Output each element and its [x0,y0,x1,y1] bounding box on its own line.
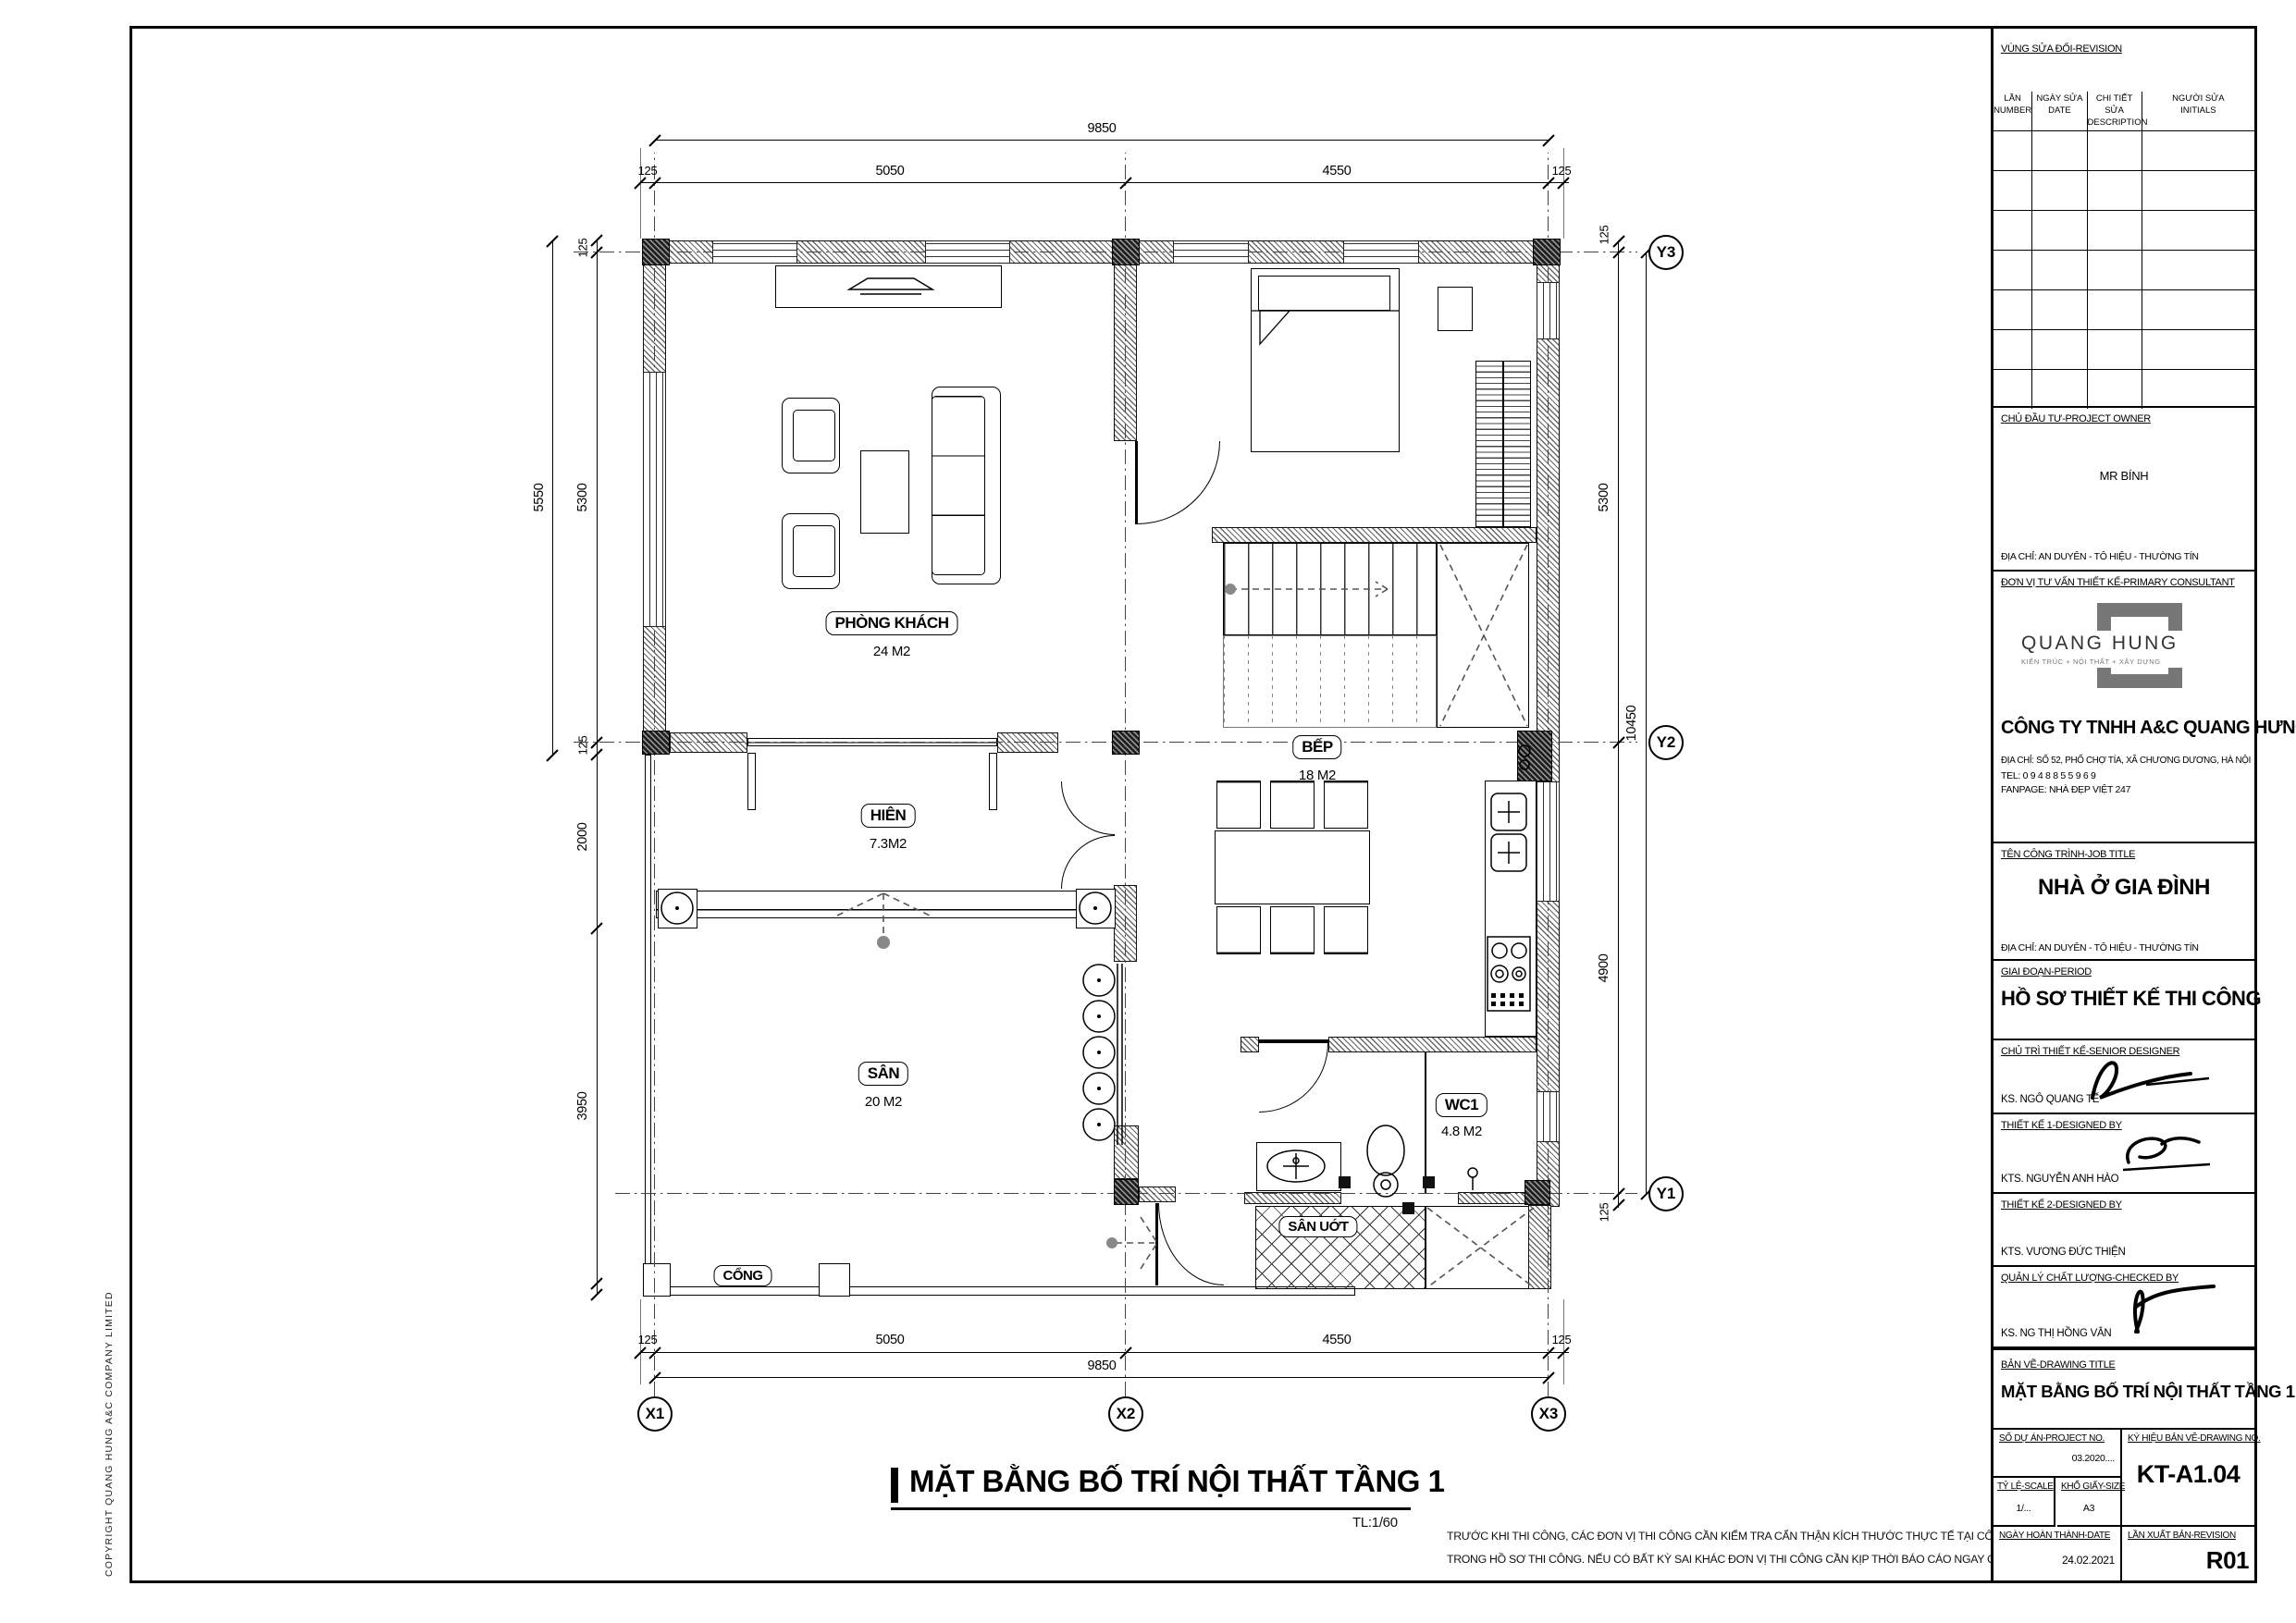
rev-row-cell [2142,130,2254,170]
dim-top-125b: 125 [1552,164,1572,178]
tb-owner-address: ĐỊA CHỈ: AN DUYÊN - TÔ HIỆU - THƯỜNG TÍN [2001,551,2199,562]
logo-title: QUANG HUNG [2021,633,2179,655]
dimline-bottom-total [655,1377,1549,1378]
rev-row-cell [2032,210,2087,250]
dim-left-3950: 3950 [575,1091,590,1120]
tb-role-design2-name: KTS. VƯƠNG ĐỨC THIỆN [2001,1247,2125,1258]
tb-scale: TỶ LỆ-SCALE 1/... [1994,1478,2055,1527]
armchair-1-seat [793,410,835,461]
tb-date-label: NGÀY HOÀN THÀNH-DATE [1999,1531,2115,1541]
dining-table [1215,830,1370,904]
rev-row-cell [1994,289,2032,329]
rev-row-cell [1994,210,2032,250]
signature-senior [2081,1053,2220,1107]
pergola-post-right [1076,889,1116,928]
tb-meta-right: KÝ HIỆU BẢN VẼ-DRAWING NO. KT-A1.04 LẦN … [2122,1430,2254,1580]
wc-partition [1425,1052,1426,1193]
tb-drawing-label: BẢN VẼ-DRAWING TITLE [2001,1359,2247,1371]
rev-row-cell [2088,289,2142,329]
rev-row-cell [2142,210,2254,250]
rev-col-number-vi: LẦN [2004,93,2020,104]
dimline-left-outer [552,240,553,756]
grid-label-x1: X1 [646,1405,665,1423]
dim-top-5050: 5050 [875,164,904,178]
dining-chair-5 [1270,906,1315,954]
rev-col-date: NGÀY SỬADATE [2032,92,2087,130]
tb-company-fanpage: FANPAGE: NHÀ ĐẸP VIỆT 247 [2001,784,2247,795]
rev-col-initials-vi: NGƯỜI SỬA [2172,93,2225,104]
rev-row-cell [2142,289,2254,329]
dim-left-outer: 5550 [532,483,547,511]
dim-bottom-total: 9850 [1087,1359,1116,1373]
column-x1-y3 [642,239,670,265]
rev-col-date-en: DATE [2048,105,2071,116]
tb-drawno-label: KÝ HIỆU BẢN VẼ-DRAWING NO. [2128,1433,2249,1444]
dining-chair-6 [1324,906,1368,954]
grid-bubble-y1: Y1 [1648,1176,1684,1211]
rev-row-cell [2088,210,2142,250]
tb-consultant: ĐƠN VỊ TƯ VẤN THIẾT KẾ-PRIMARY CONSULTAN… [1994,572,2254,843]
wall-bedroom-bottom [1212,527,1537,543]
tb-job-label: TÊN CÔNG TRÌNH-JOB TITLE [2001,849,2247,860]
tb-role-checked-name: KS. NG THỊ HỒNG VÂN [2001,1328,2111,1339]
wall-x2-lower [1114,1125,1139,1179]
wall-wc-top-b [1328,1037,1537,1052]
dim-right-125b: 125 [1598,1203,1611,1223]
dim-top-4550: 4550 [1322,164,1351,178]
tb-owner: CHỦ ĐẦU TƯ-PROJECT OWNER MR BÍNH ĐỊA CHỈ… [1994,408,2254,572]
pergola-beam [656,891,1078,918]
dining-chair-2 [1270,781,1315,829]
tb-size: KHỔ GIẤY-SIZE A3 [2057,1478,2120,1527]
tb-revision: VÙNG SỬA ĐỔI-REVISION LẦNNUMBER NGÀY SỬA… [1994,29,2254,408]
rev-row-cell [2088,130,2142,170]
grid-label-x2: X2 [1117,1405,1136,1423]
tb-role-design2-label: THIẾT KẾ 2-DESIGNED BY [2001,1199,2247,1211]
tb-role-design2: THIẾT KẾ 2-DESIGNED BY KTS. VƯƠNG ĐỨC TH… [1994,1194,2254,1267]
tb-meta-left: SỐ DỰ ÁN-PROJECT NO. 03.2020.... TỶ LỆ-S… [1994,1430,2122,1580]
window-right-bedroom [1537,282,1560,339]
yard-door-leaf [1155,1203,1158,1285]
tb-job-address: ĐỊA CHỈ: AN DUYÊN - TÔ HIỆU - THƯỜNG TÍN [2001,942,2199,953]
rev-row-cell [2032,170,2087,210]
tb-project-no: 03.2020.... [1999,1453,2115,1464]
tb-rev-value: R01 [2128,1546,2249,1575]
tb-job-title: NHÀ Ở GIA ĐÌNH [2001,875,2247,901]
rev-col-number: LẦNNUMBER [1994,92,2032,130]
tb-size-label: KHỔ GIẤY-SIZE [2061,1482,2117,1492]
column-x2-y1 [1114,1179,1139,1205]
rev-row-cell [2032,289,2087,329]
revision-table: LẦNNUMBER NGÀY SỬADATE CHI TIẾT SỬADESCR… [1994,92,2254,406]
window-right-wc [1537,1091,1560,1142]
rev-col-desc-vi: CHI TIẾT SỬA [2096,93,2132,116]
rev-col-desc: CHI TIẾT SỬADESCRIPTION [2088,92,2142,130]
tb-consultant-label: ĐƠN VỊ TƯ VẤN THIẾT KẾ-PRIMARY CONSULTAN… [2001,577,2247,588]
tb-period: GIAI ĐOẠN-PERIOD HỒ SƠ THIẾT KẾ THI CÔNG [1994,961,2254,1040]
rev-col-number-en: NUMBER [1994,105,2031,116]
rev-row-cell [1994,250,2032,289]
window-left [643,372,666,627]
rev-col-initials-en: INITIALS [2180,105,2216,116]
tank-cover [1426,1206,1536,1289]
dim-left-125t: 125 [576,239,590,258]
room-area-kitchen: 18 M2 [1299,768,1336,783]
tb-drawing-name: MẶT BẰNG BỐ TRÍ NỘI THẤT TẦNG 1 [2001,1382,2247,1402]
rev-row-cell [2032,250,2087,289]
dim-bot-4550: 4550 [1322,1333,1351,1347]
ext-top-2 [1563,148,1564,239]
rev-row-cell [1994,170,2032,210]
column-x3-y3 [1533,239,1561,265]
grid-bubble-y2: Y2 [1648,725,1684,760]
window-top-4 [1343,240,1419,264]
dimline-bottom-chain [640,1352,1569,1353]
rev-row-cell [2142,170,2254,210]
fence-left [645,755,651,1288]
tb-date-value: 24.02.2021 [1999,1554,2115,1567]
ext-top-1 [640,148,641,239]
wardrobe-centerline [1502,361,1504,527]
rev-row-cell [2088,329,2142,369]
rev-row-cell [2032,130,2087,170]
dim-left-2000: 2000 [575,822,590,851]
dim-right-4900: 4900 [1597,953,1611,982]
signature-checked [2105,1278,2225,1335]
rev-col-initials: NGƯỜI SỬAINITIALS [2142,92,2254,130]
column-x1-y2 [642,731,670,755]
armchair-2-seat [793,525,835,577]
dim-right-125t: 125 [1598,226,1611,245]
rev-row-cell [2088,250,2142,289]
column-x2-y2 [1112,731,1140,755]
tb-date: NGÀY HOÀN THÀNH-DATE 24.02.2021 [1994,1527,2120,1580]
tb-role-checked: QUẢN LÝ CHẤT LƯỢNG-CHECKED BY KS. NG THỊ… [1994,1267,2254,1348]
rev-row-cell [1994,130,2032,170]
tb-drawno-value: KT-A1.04 [2128,1460,2249,1489]
rev-row-cell [2088,369,2142,409]
tb-owner-name: MR BÍNH [2001,469,2247,483]
column-x2-y3 [1112,239,1140,265]
tb-company-tel: TEL: 0 9 4 8 8 5 5 9 6 9 [2001,770,2247,781]
dim-right-5300: 5300 [1597,483,1611,511]
main-title-bar [891,1468,898,1503]
tb-role-design1-label: THIẾT KẾ 1-DESIGNED BY [2001,1120,2247,1131]
window-top-1 [712,240,797,264]
grid-bubble-y3: Y3 [1648,235,1684,270]
room-label-yard: SÂN [858,1062,908,1086]
tb-company-address: ĐỊA CHỈ: SỐ 52, PHỐ CHỢ TÍA, XÃ CHƯƠNG D… [2001,756,2247,766]
gate-post-2 [819,1263,850,1297]
dim-top-125a: 125 [638,164,658,178]
stair-treads-upper [1223,543,1437,635]
room-label-living: PHÒNG KHÁCH [826,611,958,635]
gridline-x1 [654,153,655,1396]
dimline-top-chain [640,182,1569,183]
tb-project-label: SỐ DỰ ÁN-PROJECT NO. [1999,1433,2115,1444]
bedroom-door-leaf [1135,441,1138,524]
gridline-y2 [574,742,1637,743]
wc-basin-counter [1256,1142,1341,1191]
tv-cabinet [775,265,1002,308]
rev-col-desc-en: DESCRIPTION [2088,117,2148,128]
dim-bot-5050: 5050 [875,1333,904,1347]
grid-bubble-x2: X2 [1108,1396,1143,1432]
sofa-cushions [932,396,985,575]
tb-drawing-title: BẢN VẼ-DRAWING TITLE MẶT BẰNG BỐ TRÍ NỘI… [1994,1348,2254,1430]
tb-period-value: HỒ SƠ THIẾT KẾ THI CÔNG [2001,987,2247,1011]
plan-scale-note: TL:1/60 [1352,1515,1398,1531]
plan-title: MẶT BẰNG BỐ TRÍ NỘI THẤT TẦNG 1 [909,1464,1444,1499]
tb-scale-value: 1/... [1997,1503,2050,1514]
tb-revision-title: VÙNG SỬA ĐỔI-REVISION [2001,43,2247,55]
wall-wc-top-a [1241,1037,1259,1052]
logo-text-wrap: QUANG HUNG KIẾN TRÚC + NỘI THẤT + XÂY DỰ… [2018,631,2182,668]
dimline-right-inner [1618,240,1619,1208]
tb-role-design1-name: KTS. NGUYỄN ANH HÀO [2001,1174,2118,1185]
tb-size-value: A3 [2061,1503,2117,1514]
grid-label-x3: X3 [1539,1405,1559,1423]
dimline-left-chain [597,240,598,1295]
rev-row-cell [2142,329,2254,369]
dining-chair-3 [1324,781,1368,829]
room-area-yard: 20 M2 [865,1094,902,1110]
room-label-wetyard: SÂN UỚT [1278,1216,1357,1237]
dim-bot-125b: 125 [1552,1333,1572,1346]
dimline-right-outer [1646,252,1647,1194]
dimline-top-total [655,140,1549,141]
dining-chair-4 [1216,906,1261,954]
dim-right-total: 10450 [1624,706,1639,742]
room-area-wc: 4.8 M2 [1441,1124,1482,1139]
grid-label-y3: Y3 [1657,243,1676,262]
room-area-living: 24 M2 [873,644,910,659]
title-block: VÙNG SỬA ĐỔI-REVISION LẦNNUMBER NGÀY SỬA… [1991,26,2257,1583]
gate-post-1 [643,1263,671,1297]
stair-landing [1437,543,1529,728]
signature-design1 [2114,1131,2225,1179]
wall-step [1139,1187,1176,1202]
logo-subtitle: KIẾN TRÚC + NỘI THẤT + XÂY DỰNG [2021,658,2179,666]
tb-project: SỐ DỰ ÁN-PROJECT NO. 03.2020.... [1994,1430,2120,1478]
pergola-post-left [658,889,697,928]
consultant-logo: QUANG HUNG KIẾN TRÚC + NỘI THẤT + XÂY DỰ… [2001,596,2247,707]
grid-bubble-x3: X3 [1531,1396,1566,1432]
rev-row-cell [1994,329,2032,369]
column-x3-y1 [1524,1180,1550,1205]
main-title-underline [891,1507,1411,1510]
rev-row-cell [2032,369,2087,409]
tb-scale-label: TỶ LỆ-SCALE [1997,1482,2050,1492]
tb-drawno: KÝ HIỆU BẢN VẼ-DRAWING NO. KT-A1.04 [2122,1430,2254,1527]
rev-row-cell [2088,170,2142,210]
rev-row-cell [2032,329,2087,369]
column-kitchen-corner [1517,731,1552,781]
dim-left-125b: 125 [576,736,590,756]
dim-bot-125a: 125 [638,1333,658,1346]
tb-job: TÊN CÔNG TRÌNH-JOB TITLE NHÀ Ở GIA ĐÌNH … [1994,843,2254,961]
tb-role-design1: THIẾT KẾ 1-DESIGNED BY KTS. NGUYỄN ANH H… [1994,1114,2254,1194]
window-top-2 [925,240,1010,264]
grid-bubble-x1: X1 [637,1396,673,1432]
rev-row-cell [1994,369,2032,409]
fence-bottom [643,1286,1355,1296]
tb-role-senior: CHỦ TRÌ THIẾT KẾ-SENIOR DESIGNER KS. NGÔ… [1994,1040,2254,1114]
grid-label-y1: Y1 [1657,1185,1676,1203]
room-label-wc: WC1 [1436,1093,1487,1117]
dim-top-total: 9850 [1087,121,1116,136]
copyright-text: COPYRIGHT QUANG HUNG A&C COMPANY LIMITED [104,1291,115,1577]
tb-meta: SỐ DỰ ÁN-PROJECT NO. 03.2020.... TỶ LỆ-S… [1994,1430,2254,1580]
stair-treads-lower [1223,635,1437,728]
room-label-kitchen: BẾP [1292,735,1341,759]
sliding-door-track-1 [747,753,756,810]
dim-left-5300: 5300 [575,483,590,511]
grid-label-y2: Y2 [1657,733,1676,752]
window-right-kitchen [1537,781,1560,902]
room-label-gate: CỔNG [714,1265,772,1286]
kitchen-counter [1485,781,1537,1037]
rev-row-cell [2142,250,2254,289]
dining-chair-1 [1216,781,1261,829]
tb-rev-label: LẦN XUẤT BẢN-REVISION [2128,1531,2249,1541]
rev-row-cell [2142,369,2254,409]
coffee-table [860,450,909,534]
window-top-3 [1173,240,1249,264]
tb-owner-label: CHỦ ĐẦU TƯ-PROJECT OWNER [2001,413,2247,424]
sliding-door-track-2 [989,753,997,810]
tb-company-name: CÔNG TY TNHH A&C QUANG HƯNG [2001,718,2247,739]
tb-rev: LẦN XUẤT BẢN-REVISION R01 [2122,1527,2254,1580]
room-area-porch: 7.3M2 [870,836,907,852]
desk [1438,287,1473,331]
bed-headboard [1258,276,1390,311]
rev-col-date-vi: NGÀY SỬA [2036,93,2082,104]
gridline-x2 [1125,153,1126,1396]
room-label-porch: HIÊN [861,804,916,828]
tb-period-label: GIAI ĐOẠN-PERIOD [2001,966,2247,977]
